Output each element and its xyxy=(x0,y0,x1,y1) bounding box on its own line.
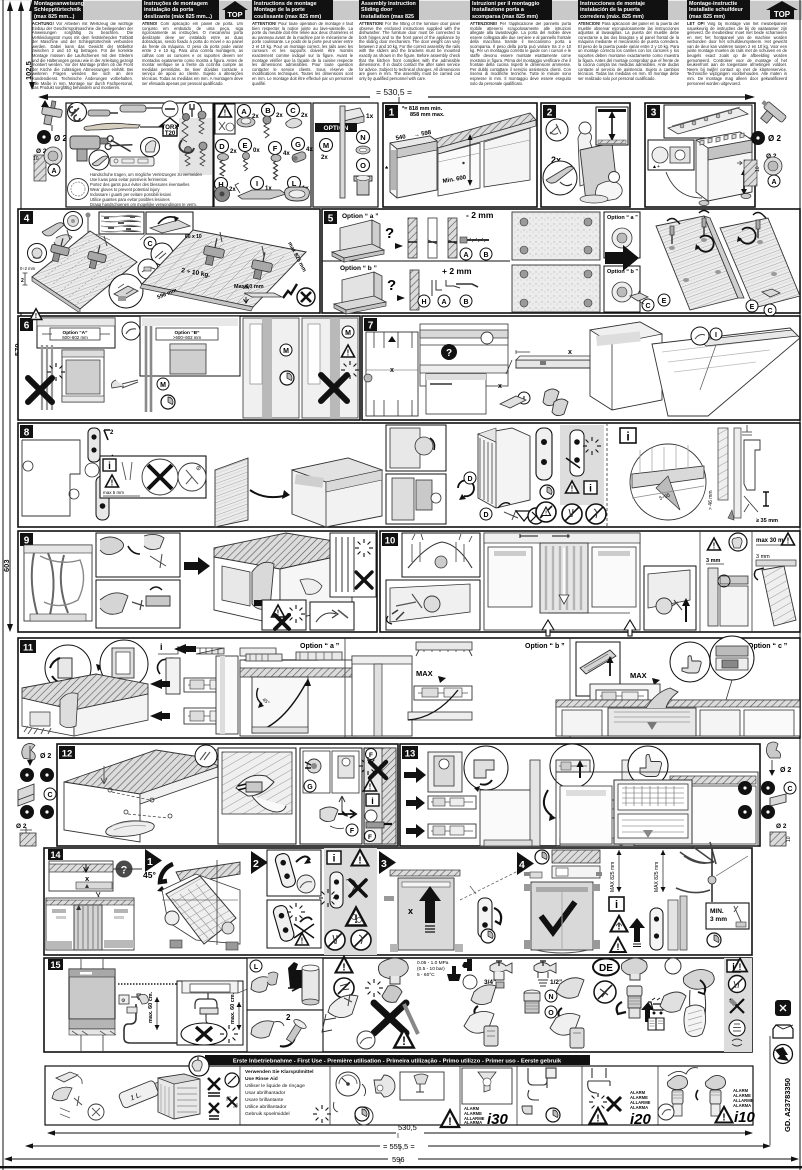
svg-text:?: ? xyxy=(385,225,394,242)
svg-text:2x: 2x xyxy=(301,113,308,119)
svg-text:i: i xyxy=(371,796,374,806)
svg-text:4: 4 xyxy=(24,214,30,225)
svg-text:max. 60 cm.: max. 60 cm. xyxy=(148,991,154,1023)
svg-text:10: 10 xyxy=(33,156,39,162)
svg-text:H: H xyxy=(421,299,426,306)
svg-text:2: 2 xyxy=(21,278,24,284)
svg-text:?: ? xyxy=(387,277,396,294)
svg-text:Usar abrilhantador: Usar abrilhantador xyxy=(245,1090,286,1096)
svg-text:F: F xyxy=(369,752,373,759)
svg-text:1x: 1x xyxy=(366,113,374,120)
svg-text:13: 13 xyxy=(405,749,416,760)
svg-text:10: 10 xyxy=(385,536,396,547)
svg-text:Utiliser le liquide de rinçage: Utiliser le liquide de rinçage xyxy=(245,1083,305,1089)
svg-text:12: 12 xyxy=(62,749,73,760)
svg-text:D: D xyxy=(483,512,488,519)
svg-text:600÷602 mm: 600÷602 mm xyxy=(62,335,88,340)
svg-text:E: E xyxy=(242,141,247,150)
svg-text:DE: DE xyxy=(599,963,613,974)
svg-text:?: ? xyxy=(121,865,128,877)
svg-text:A: A xyxy=(441,299,446,306)
svg-text:≥ 35 mm: ≥ 35 mm xyxy=(756,518,778,524)
svg-text:- 2 mm: - 2 mm xyxy=(466,210,494,220)
svg-text:2x: 2x xyxy=(276,113,283,119)
svg-text:N: N xyxy=(548,994,553,1001)
svg-text:Option “ c ”: Option “ c ” xyxy=(748,643,787,650)
svg-text:> 46 mm: > 46 mm xyxy=(708,490,714,510)
svg-text:A: A xyxy=(241,107,247,116)
svg-text:⚙: ⚙ xyxy=(121,998,126,1004)
svg-text:0÷2 mm: 0÷2 mm xyxy=(20,266,36,271)
svg-text:Option “ b ”: Option “ b ” xyxy=(525,643,565,650)
svg-text:1: 1 xyxy=(389,108,395,119)
svg-text:2x: 2x xyxy=(229,187,236,193)
svg-text:i: i xyxy=(108,461,111,472)
svg-text:C: C xyxy=(645,303,650,310)
svg-text:858 mm max.: 858 mm max. xyxy=(410,112,445,118)
svg-text:N: N xyxy=(360,133,365,142)
svg-text:Option “ b ”: Option “ b ” xyxy=(607,269,638,275)
svg-text:D: D xyxy=(467,476,472,483)
svg-text:45°: 45° xyxy=(143,870,156,880)
svg-text:O: O xyxy=(360,161,366,170)
svg-text:1: 1 xyxy=(147,856,153,868)
svg-text:(0.5 - 10 bar): (0.5 - 10 bar) xyxy=(417,966,445,972)
svg-text:TOP: TOP xyxy=(227,10,242,19)
svg-text:ALARMA: ALARMA xyxy=(464,1120,482,1125)
svg-text:Option “ a ”: Option “ a ” xyxy=(342,213,378,220)
svg-text:M: M xyxy=(283,348,289,355)
svg-text:3: 3 xyxy=(381,858,387,870)
svg-text:C: C xyxy=(787,786,792,793)
svg-text:Option “ b ”: Option “ b ” xyxy=(340,265,377,272)
svg-text:530,5: 530,5 xyxy=(398,1123,417,1132)
svg-text:i10: i10 xyxy=(734,1109,756,1126)
svg-text:Draag handschoenen om mogelijk: Draag handschoenen om mogelijke verwondi… xyxy=(90,202,197,207)
svg-text:Ø 2: Ø 2 xyxy=(16,823,27,830)
svg-text:i: i xyxy=(160,642,163,652)
svg-text:2: 2 xyxy=(286,1013,291,1022)
svg-text:i30: i30 xyxy=(487,1111,509,1128)
svg-text:D: D xyxy=(219,142,225,151)
svg-text:F: F xyxy=(273,144,278,153)
svg-text:M: M xyxy=(345,330,351,337)
svg-text:6: 6 xyxy=(24,321,30,332)
svg-text:3 mm: 3 mm xyxy=(706,558,720,564)
svg-text:MAX: MAX xyxy=(630,671,647,680)
svg-text:5 - 60°C: 5 - 60°C xyxy=(417,972,435,978)
svg-text:Utilice abrillantador: Utilice abrillantador xyxy=(245,1104,287,1110)
svg-text:x: x xyxy=(390,367,394,374)
svg-text:max. 60 cm.: max. 60 cm. xyxy=(230,992,236,1024)
svg-text:I: I xyxy=(256,179,258,188)
svg-text:8: 8 xyxy=(24,428,30,439)
svg-text:2: 2 xyxy=(547,108,553,119)
svg-text:x: x xyxy=(498,383,502,390)
svg-text:G: G xyxy=(295,140,301,149)
svg-text:= 555,5 =: = 555,5 = xyxy=(383,1142,415,1151)
svg-text:A: A xyxy=(51,168,56,175)
svg-text:14: 14 xyxy=(50,850,60,860)
svg-text:C: C xyxy=(47,792,52,799)
svg-text:4x: 4x xyxy=(283,151,290,157)
svg-text:E: E xyxy=(662,298,667,305)
svg-text:B: B xyxy=(463,299,468,306)
svg-text:3 mm: 3 mm xyxy=(710,916,727,923)
svg-text:10: 10 xyxy=(786,836,792,842)
svg-text:Erste Inbetriebnahme - First U: Erste Inbetriebnahme - First Use - Premi… xyxy=(233,1059,562,1065)
svg-text:▲+: ▲+ xyxy=(652,164,660,170)
svg-text:I: I xyxy=(715,332,717,339)
svg-text:2: 2 xyxy=(253,858,259,870)
svg-text:Use Rinse Aid: Use Rinse Aid xyxy=(245,1076,278,1082)
svg-text:0.05 - 1.0 MPa: 0.05 - 1.0 MPa xyxy=(417,960,449,966)
svg-text:i: i xyxy=(589,484,592,495)
svg-text:ALARMA: ALARMA xyxy=(733,1103,751,1108)
svg-text:3 mm: 3 mm xyxy=(756,554,770,560)
svg-text:5: 5 xyxy=(328,214,334,225)
svg-text:?: ? xyxy=(446,348,452,359)
svg-text:+ 2 mm: + 2 mm xyxy=(442,266,472,276)
svg-text:GD. A23783350: GD. A23783350 xyxy=(783,1078,792,1132)
svg-text:max 5 mm: max 5 mm xyxy=(103,490,124,495)
svg-text:Option “ a ”: Option “ a ” xyxy=(300,643,339,650)
svg-text:10: 10 xyxy=(755,166,761,172)
svg-text:M: M xyxy=(160,382,166,389)
svg-text:i20: i20 xyxy=(630,1111,652,1128)
svg-text:O: O xyxy=(548,1010,554,1017)
svg-text:*: * xyxy=(462,161,469,164)
svg-text:F: F xyxy=(350,828,355,835)
svg-text:TOP: TOP xyxy=(774,10,791,19)
svg-text:i: i xyxy=(615,899,618,911)
svg-text:x: x xyxy=(568,349,572,356)
svg-text:A: A xyxy=(771,179,776,186)
svg-text:C: C xyxy=(290,106,296,115)
svg-text:Ø 2: Ø 2 xyxy=(776,823,787,830)
svg-text:L: L xyxy=(254,964,259,971)
svg-text:0x: 0x xyxy=(253,148,260,154)
svg-text:C: C xyxy=(147,241,152,248)
svg-text:i: i xyxy=(626,430,629,444)
svg-text:MIN.: MIN. xyxy=(710,908,724,915)
svg-text:G: G xyxy=(307,784,313,791)
svg-text:ALARMA: ALARMA xyxy=(630,1105,648,1110)
svg-text:Usare brillantante: Usare brillantante xyxy=(245,1097,284,1103)
svg-text:x: x xyxy=(408,906,413,916)
svg-text:MAX 825 mm: MAX 825 mm xyxy=(610,862,616,892)
svg-text:MAX 825 mm: MAX 825 mm xyxy=(654,862,660,892)
svg-text:2x: 2x xyxy=(321,155,328,161)
svg-text:⊘: ⊘ xyxy=(196,466,201,472)
svg-text:4x: 4x xyxy=(306,147,313,153)
svg-text:4: 4 xyxy=(519,859,525,871)
svg-text:B: B xyxy=(483,252,488,259)
svg-text:11: 11 xyxy=(23,643,34,654)
svg-text:15: 15 xyxy=(50,960,60,970)
svg-text:Ø 2: Ø 2 xyxy=(780,767,791,774)
svg-text:B: B xyxy=(265,106,271,115)
svg-text:Ø 2: Ø 2 xyxy=(768,134,781,143)
svg-text:60 x 10: 60 x 10 xyxy=(185,234,202,240)
svg-text:M: M xyxy=(323,141,329,150)
svg-text:i: i xyxy=(333,854,336,865)
svg-text:E: E xyxy=(750,304,755,311)
svg-text:T20: T20 xyxy=(165,131,176,137)
svg-text:Verwenden Sie Klarspülmittel: Verwenden Sie Klarspülmittel xyxy=(245,1069,314,1075)
svg-text:Option “ a ”: Option “ a ” xyxy=(607,215,638,221)
svg-text:603: 603 xyxy=(2,559,11,572)
svg-text:A: A xyxy=(463,252,468,259)
svg-text:3: 3 xyxy=(651,108,657,119)
svg-text:>600÷602 mm: >600÷602 mm xyxy=(173,335,202,340)
svg-text:C: C xyxy=(767,308,772,315)
svg-text:2x: 2x xyxy=(230,149,237,155)
svg-text:Max 10 mm: Max 10 mm xyxy=(234,284,264,290)
svg-text:7: 7 xyxy=(368,321,374,332)
svg-text:Ø 2: Ø 2 xyxy=(40,753,51,760)
svg-text:596: 596 xyxy=(392,1155,405,1164)
svg-text:Gebruik spoelmiddel: Gebruik spoelmiddel xyxy=(245,1111,290,1117)
svg-text:MAX: MAX xyxy=(416,669,433,678)
svg-text:F: F xyxy=(368,834,372,841)
